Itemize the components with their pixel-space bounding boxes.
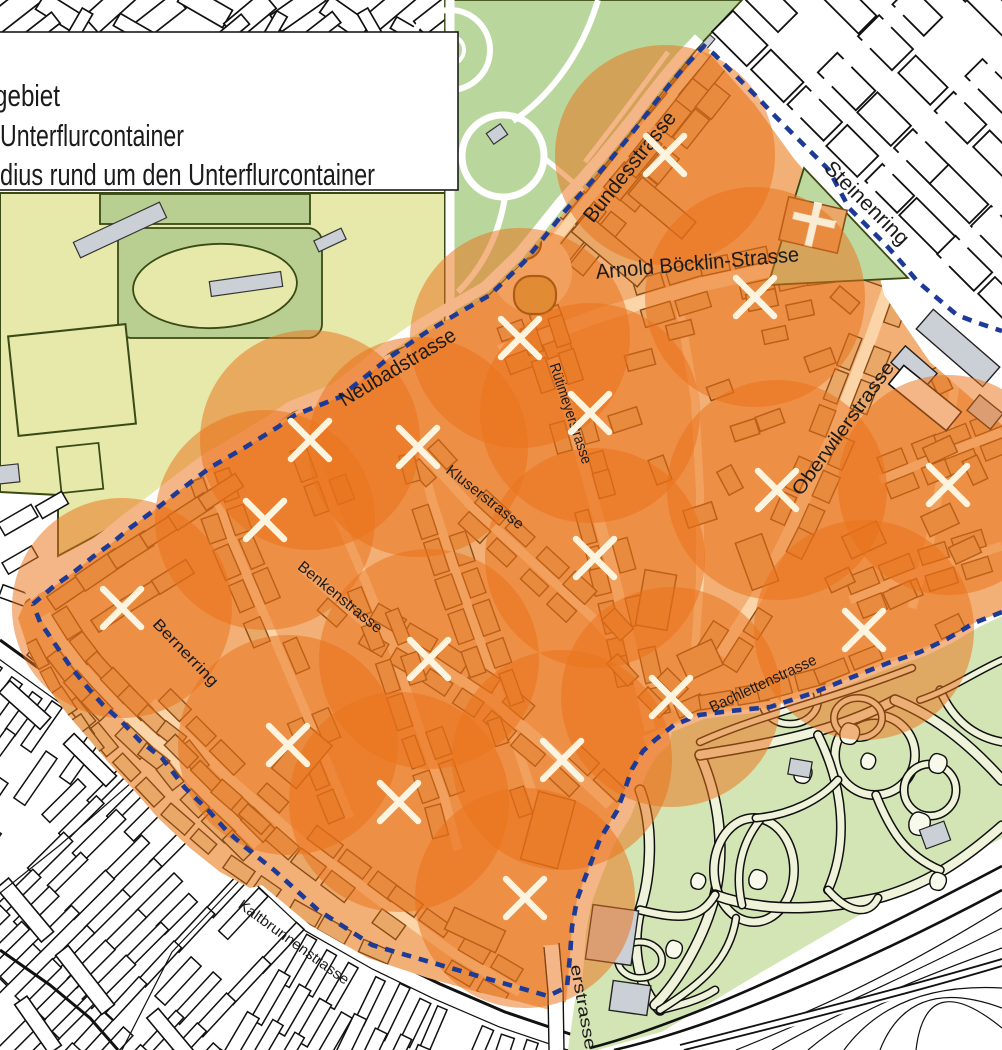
svg-text:Unterflurcontainer: Unterflurcontainer xyxy=(0,118,184,153)
svg-text:dius rund um den Unterflurcont: dius rund um den Unterflurcontainer xyxy=(0,157,375,192)
svg-text:gebiet: gebiet xyxy=(0,78,60,113)
